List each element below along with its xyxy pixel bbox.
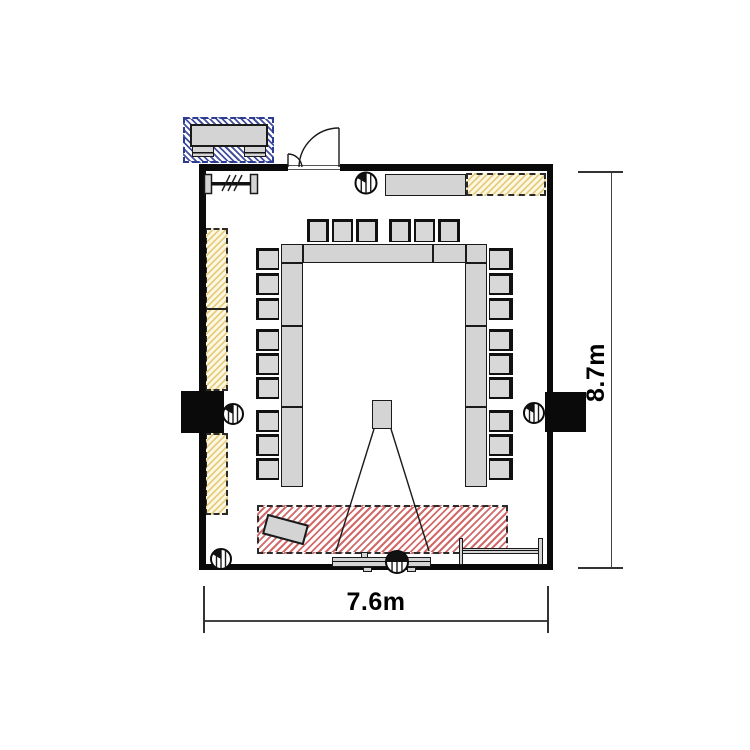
chair — [333, 220, 353, 242]
chair — [257, 354, 279, 374]
plan-overlay — [0, 0, 750, 750]
screen-foot-left — [363, 567, 372, 572]
chair — [489, 330, 511, 350]
table-segment — [433, 244, 466, 263]
chair — [257, 274, 279, 294]
table-segment — [465, 263, 487, 326]
chair — [257, 435, 279, 455]
chair — [308, 220, 328, 242]
chair — [257, 249, 279, 269]
wall-left — [199, 164, 206, 570]
av-cabinet-foot-right — [244, 146, 266, 157]
rail-post-right — [538, 538, 543, 565]
dim-label-width: 7.6m — [204, 588, 548, 617]
floor-plan: 7.6m 8.7m — [0, 0, 750, 750]
chair — [489, 249, 511, 269]
table-segment — [281, 244, 303, 263]
chair — [489, 354, 511, 374]
wall-unit-left — [181, 391, 224, 433]
dim-tick-bottom — [578, 567, 623, 569]
column-symbol — [524, 403, 544, 423]
chair — [357, 220, 377, 242]
yellow-strip-lower — [205, 433, 228, 515]
yellow-strip-divider — [206, 308, 227, 310]
chair — [390, 220, 410, 242]
wall-rail — [461, 548, 543, 555]
table-segment — [465, 407, 487, 487]
chair — [415, 220, 435, 242]
chair — [257, 378, 279, 398]
chair — [257, 299, 279, 319]
yellow-strip-upper — [205, 228, 228, 391]
projector — [372, 400, 392, 429]
door-threshold — [288, 165, 340, 171]
screen-foot-right — [407, 567, 416, 572]
chair — [439, 220, 459, 242]
chair — [489, 274, 511, 294]
chair — [489, 459, 511, 479]
table-segment — [465, 326, 487, 407]
chair — [257, 411, 279, 431]
chair — [489, 378, 511, 398]
radiator-symbol — [205, 175, 258, 194]
table-segment — [466, 244, 487, 263]
projection-screen — [332, 557, 431, 567]
yellow-zone-top-right — [466, 173, 546, 196]
wall-top-left — [199, 164, 288, 171]
table-segment — [303, 244, 433, 263]
table-segment — [281, 263, 303, 326]
column-symbol — [356, 172, 377, 193]
chair — [489, 435, 511, 455]
dim-tick-top — [578, 171, 623, 173]
av-cabinet-foot-left — [192, 146, 214, 157]
wall-top-right — [340, 164, 553, 171]
chair — [257, 330, 279, 350]
rail-post-left — [459, 538, 464, 565]
chair — [489, 299, 511, 319]
table-segment — [281, 407, 303, 487]
av-cabinet-body — [190, 124, 268, 147]
double-door — [288, 128, 339, 167]
dim-label-height: 8.7m — [581, 343, 610, 402]
dim-label-height-wrap: 8.7m — [565, 302, 627, 442]
chair — [489, 411, 511, 431]
column-symbol — [223, 404, 243, 424]
wall-right — [547, 164, 554, 570]
table-segment — [281, 326, 303, 407]
dim-line-horizontal — [204, 620, 548, 622]
screen-bracket — [361, 552, 368, 558]
chair — [257, 459, 279, 479]
sideboard — [385, 174, 466, 196]
